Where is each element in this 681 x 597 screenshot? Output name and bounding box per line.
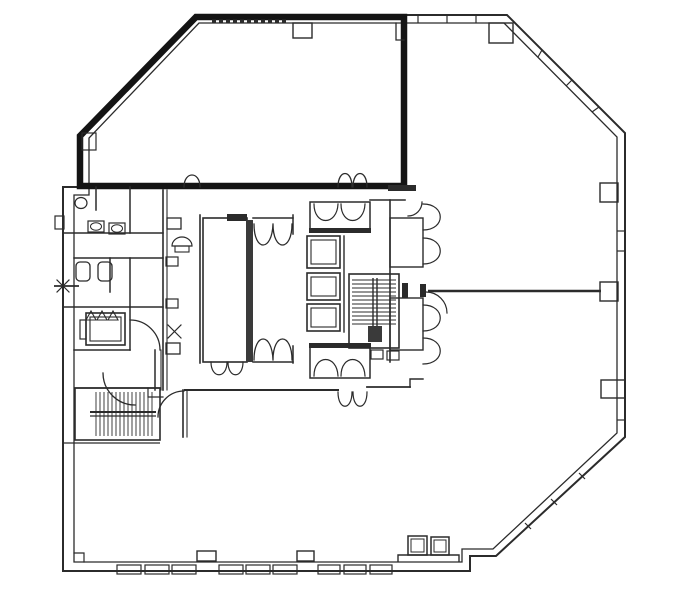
right-wall-column bbox=[600, 282, 618, 301]
window-panel bbox=[246, 565, 270, 574]
door-jamb bbox=[420, 284, 426, 297]
mullion-tick bbox=[592, 107, 599, 112]
building-inner-wall bbox=[74, 23, 617, 562]
window-panel bbox=[172, 565, 196, 574]
window-panel bbox=[318, 565, 340, 574]
wall-column bbox=[166, 343, 180, 354]
window-panel bbox=[273, 565, 297, 574]
fixture-sink-bowl bbox=[91, 223, 102, 231]
cabinet bbox=[371, 350, 383, 359]
door-head-fill bbox=[227, 214, 247, 221]
right-wall-column bbox=[600, 183, 618, 202]
fixture-fountain bbox=[172, 237, 192, 246]
window-panel bbox=[117, 565, 141, 574]
door-arc bbox=[130, 320, 160, 350]
core-south-step bbox=[410, 379, 423, 387]
double-door-fan bbox=[254, 224, 292, 245]
core-room bbox=[203, 218, 247, 362]
shaft-wall-fill bbox=[246, 220, 253, 362]
bottom-wall-column bbox=[297, 551, 314, 561]
equipment-box-inner bbox=[434, 540, 446, 552]
fixture-sink-bowl bbox=[112, 225, 123, 233]
double-door-fan bbox=[338, 392, 367, 406]
double-door-fan bbox=[423, 305, 440, 364]
service-room-tab bbox=[80, 320, 86, 339]
cabinet bbox=[387, 351, 399, 360]
wall-column bbox=[166, 299, 178, 308]
fixture-toilet bbox=[76, 262, 90, 281]
window-panel bbox=[370, 565, 392, 574]
floor-plan-svg bbox=[0, 0, 681, 597]
wall-column bbox=[166, 257, 178, 266]
elevator-car bbox=[311, 277, 336, 296]
stair-enclosure bbox=[75, 388, 160, 440]
window-panel bbox=[145, 565, 169, 574]
door-arc bbox=[158, 391, 184, 417]
door-jamb bbox=[402, 283, 408, 298]
wall-marker-x bbox=[168, 325, 181, 338]
equipment-box-inner bbox=[411, 539, 424, 552]
tenant-suite-bold-outline bbox=[80, 17, 404, 186]
top-wall-recess bbox=[489, 23, 513, 43]
wall-fill bbox=[388, 185, 416, 191]
wall-column bbox=[167, 218, 181, 229]
corner-step bbox=[74, 553, 84, 562]
double-door-fan bbox=[314, 360, 365, 377]
double-door-fan bbox=[423, 204, 440, 264]
double-door-fan bbox=[254, 339, 292, 360]
floor-plan-page bbox=[0, 0, 681, 597]
door-arc bbox=[408, 202, 422, 216]
bottom-wall-column bbox=[197, 551, 216, 561]
mullion-tick bbox=[538, 50, 542, 57]
window-panel bbox=[344, 565, 366, 574]
vestibule-wall-fill bbox=[309, 228, 371, 233]
elevator-car bbox=[311, 308, 336, 327]
elevator-car bbox=[311, 240, 336, 264]
window-panel bbox=[219, 565, 243, 574]
equipment-platform bbox=[398, 555, 459, 561]
core-room bbox=[390, 218, 423, 267]
service-room-inner bbox=[90, 317, 121, 341]
fixture-fountain-base bbox=[175, 246, 189, 252]
elevator-shaft bbox=[307, 236, 340, 268]
floor-plan bbox=[0, 0, 681, 597]
double-door-fan bbox=[314, 204, 365, 221]
top-wall-column bbox=[293, 23, 312, 38]
stair-newel-fill bbox=[368, 326, 382, 342]
right-wall-column bbox=[601, 380, 625, 398]
mullion-tick bbox=[566, 80, 572, 86]
fixture-basin bbox=[75, 198, 87, 209]
double-door-fan bbox=[211, 362, 243, 375]
